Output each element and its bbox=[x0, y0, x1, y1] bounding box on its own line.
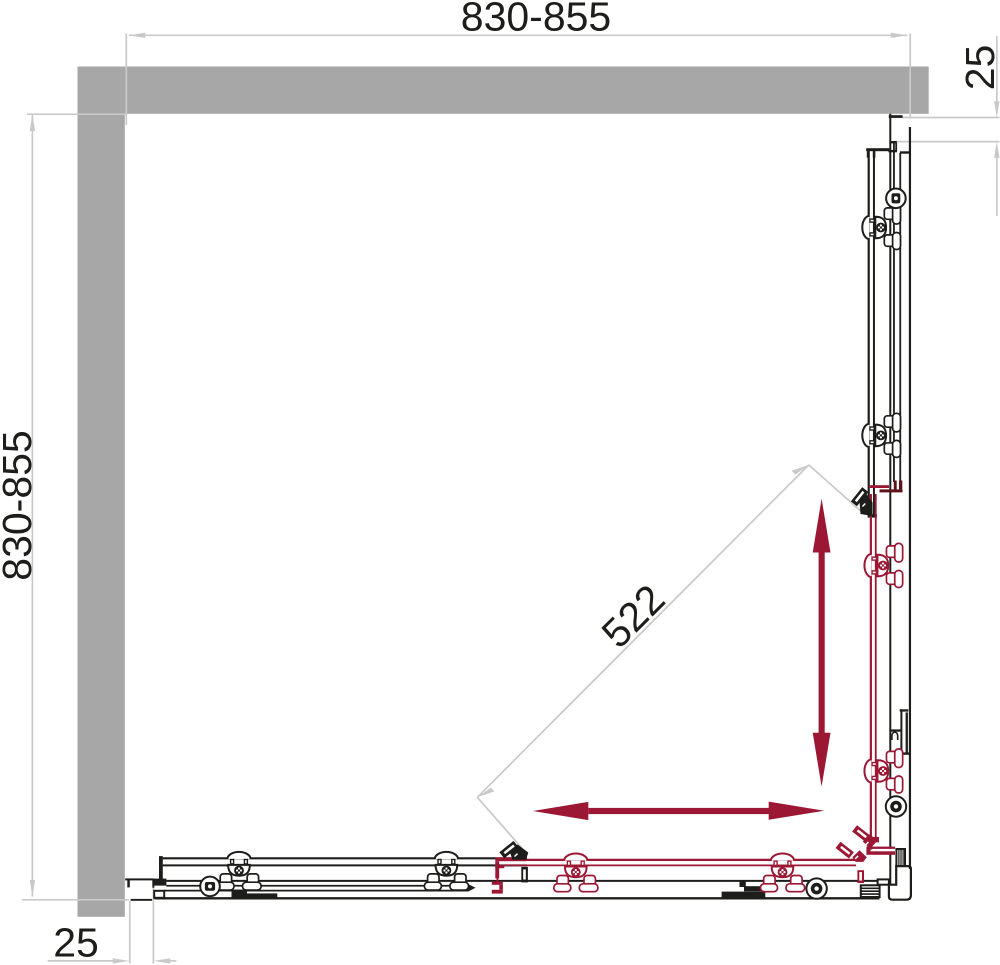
svg-text:25: 25 bbox=[957, 45, 1000, 91]
svg-text:830-855: 830-855 bbox=[461, 0, 611, 40]
svg-text:830-855: 830-855 bbox=[0, 430, 40, 580]
svg-text:25: 25 bbox=[53, 919, 99, 965]
